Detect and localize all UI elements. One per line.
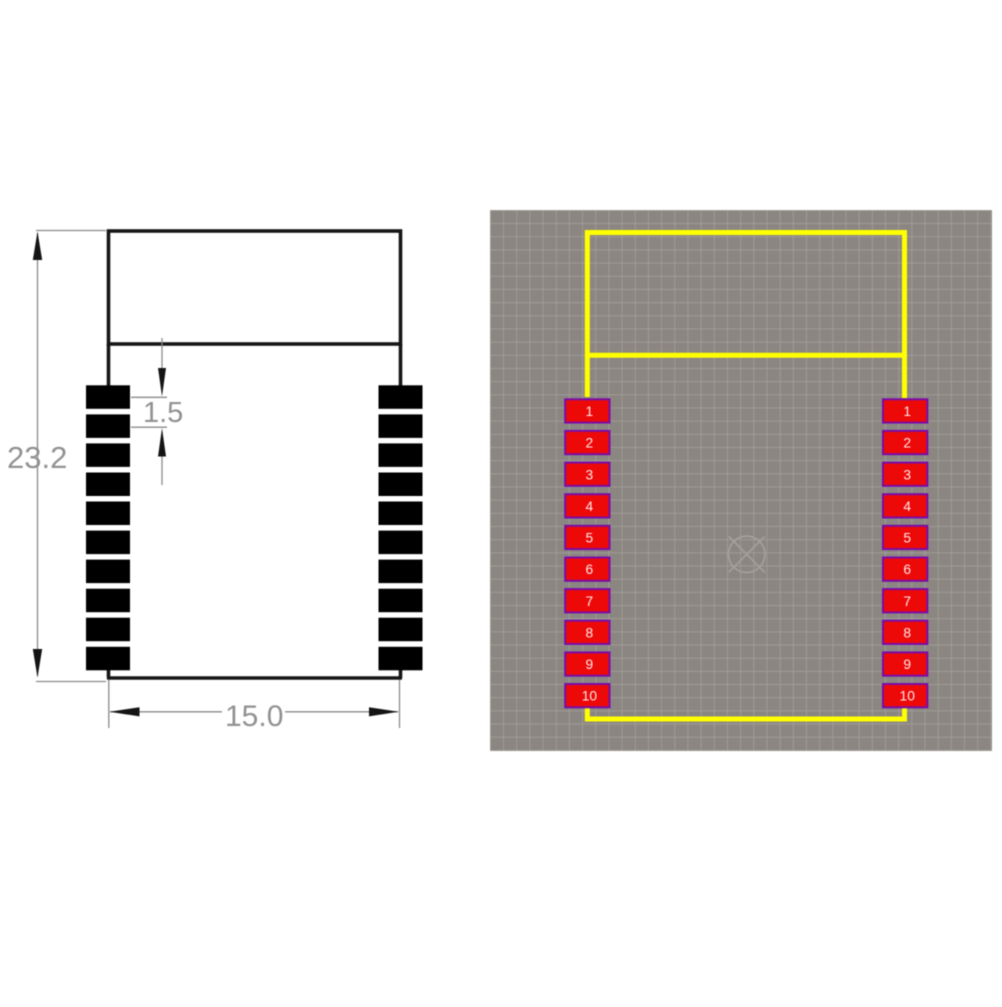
svg-text:4: 4 — [903, 499, 911, 514]
svg-text:2: 2 — [903, 436, 911, 451]
svg-text:7: 7 — [586, 594, 594, 609]
svg-text:1: 1 — [903, 404, 911, 419]
svg-text:4: 4 — [586, 499, 594, 514]
svg-text:9: 9 — [903, 657, 911, 672]
svg-text:1: 1 — [586, 404, 594, 419]
svg-text:10: 10 — [582, 689, 598, 704]
svg-text:7: 7 — [903, 594, 911, 609]
svg-text:15.0: 15.0 — [225, 700, 283, 733]
svg-text:5: 5 — [903, 531, 911, 546]
svg-text:8: 8 — [586, 625, 594, 640]
svg-text:3: 3 — [586, 467, 594, 482]
svg-text:9: 9 — [586, 657, 594, 672]
svg-text:6: 6 — [586, 562, 594, 577]
svg-text:5: 5 — [586, 531, 594, 546]
svg-text:10: 10 — [900, 689, 916, 704]
svg-text:1.5: 1.5 — [143, 397, 183, 429]
svg-text:23.2: 23.2 — [7, 440, 67, 475]
svg-text:2: 2 — [586, 436, 594, 451]
svg-text:8: 8 — [903, 625, 911, 640]
svg-text:3: 3 — [903, 467, 911, 482]
svg-text:6: 6 — [903, 562, 911, 577]
